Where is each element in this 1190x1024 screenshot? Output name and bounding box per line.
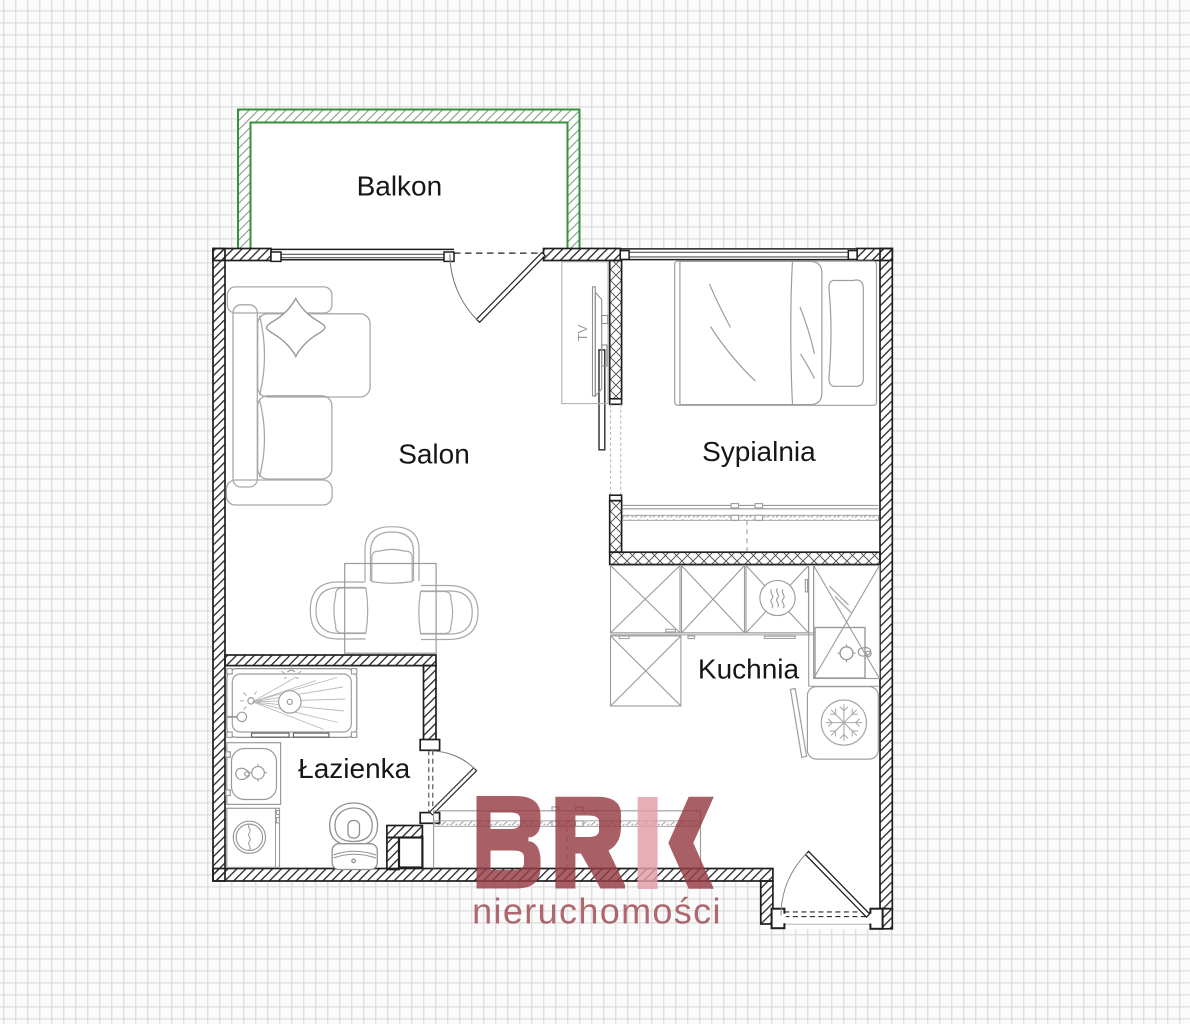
svg-text:nieruchomości: nieruchomości: [472, 891, 722, 932]
svg-text:TV: TV: [575, 324, 590, 341]
svg-text:Kuchnia: Kuchnia: [698, 654, 800, 685]
svg-text:Balkon: Balkon: [357, 170, 443, 201]
svg-text:Łazienka: Łazienka: [298, 753, 411, 784]
svg-text:Salon: Salon: [398, 438, 470, 469]
svg-text:Sypialnia: Sypialnia: [702, 436, 816, 467]
